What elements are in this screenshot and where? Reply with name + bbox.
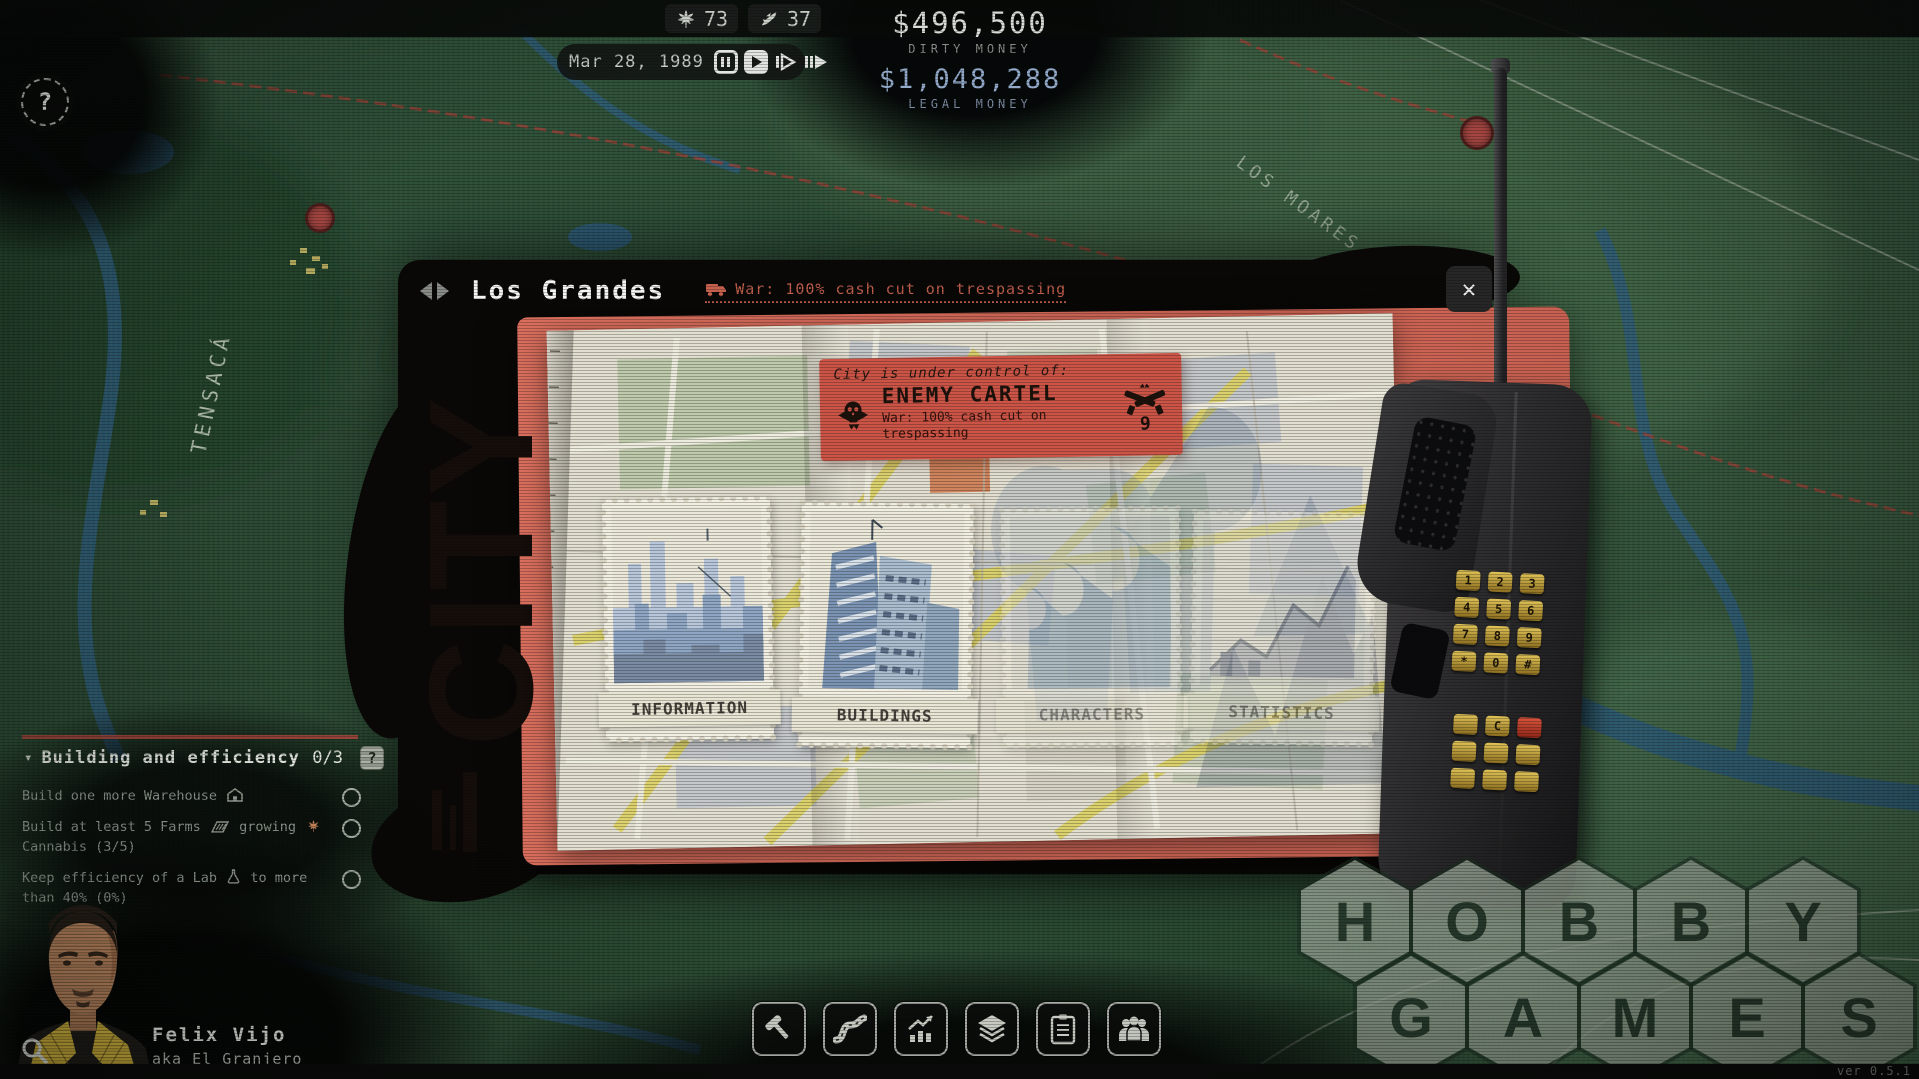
tab-buildings-label: BUILDINGS [792,697,978,735]
brick-phone: 1 2 3 4 5 6 7 8 9 * 0 # C [1378,52,1608,872]
fast-forward-icon [775,53,797,71]
help-button[interactable]: ? [21,78,69,126]
phone-key[interactable]: 5 [1486,598,1511,619]
orders-button[interactable] [1036,1002,1090,1056]
task-checkbox[interactable] [342,870,361,889]
quest-header[interactable]: ▾ Building and efficiency 0/3 ? [22,738,388,776]
bottom-bar: ver 0.5.1 [0,1064,1919,1079]
war-status-text: War: 100% cash cut on trespassing [735,280,1066,298]
people-icon [1010,516,1172,689]
task-text: Build at least 5 Farms [22,819,201,835]
phone-function-key[interactable] [1514,771,1539,792]
collapse-arrow-icon[interactable]: ▾ [24,750,32,766]
task-text: Cannabis (3/5) [22,839,136,855]
enemy-cartel-skull-icon [834,385,873,444]
player-name: Felix Vijo [152,1024,302,1046]
player-name-block: Felix Vijo aka El Granjero [152,1024,302,1068]
quest-tracker: ▾ Building and efficiency 0/3 ? Build on… [22,738,388,908]
legal-money-label: LEGAL MONEY [820,97,1120,111]
search-icon[interactable] [20,1036,50,1066]
lab-flask-icon [227,869,240,884]
route-road-icon [833,1013,867,1045]
tab-buildings[interactable]: BUILDINGS [798,502,973,748]
city-side-word: CITY [407,310,557,830]
phone-function-key[interactable] [1453,714,1478,735]
phone-key[interactable]: 9 [1517,627,1542,648]
control-effect-text: War: 100% cash cut on trespassing [882,407,1113,444]
money-display: $496,500 DIRTY MONEY $1,048,288 LEGAL MO… [820,6,1120,111]
time-controls: Mar 28, 1989 [557,44,805,80]
game-date: Mar 28, 1989 [569,52,704,72]
warehouse-icon [227,788,243,802]
fast-forward-button[interactable] [774,50,798,74]
buildings-stamp-art [808,511,964,690]
cannabis-count: 73 [704,7,728,31]
task-text: growing [239,819,296,835]
city-map-pin[interactable] [305,203,335,233]
phone-clear-key[interactable]: C [1485,715,1510,736]
war-strength: 9 [1122,383,1169,435]
task-checkbox[interactable] [342,819,361,838]
characters-stamp-art [1010,516,1172,689]
characters-button[interactable] [1107,1002,1161,1056]
main-toolbar [752,1002,1161,1056]
chart-icon [1200,520,1367,688]
dirty-money-label: DIRTY MONEY [820,42,1120,56]
statistics-button[interactable] [894,1002,948,1056]
information-stamp-art [611,506,764,684]
quest-reward-icon[interactable]: ? [360,746,384,770]
decorative-bar [463,772,477,852]
city-control-banner: City is under control of: ENEMY CARTEL W… [819,353,1183,461]
quest-divider [22,735,358,739]
cannabis-leaf-small-icon [306,819,321,833]
bird-icon [758,8,780,30]
phone-key[interactable]: 6 [1518,600,1543,621]
bird-count: 37 [787,7,811,31]
decorative-bar [432,790,442,850]
truck-icon [705,281,727,297]
phone-key[interactable]: * [1451,651,1476,672]
city-title: Los Grandes [471,276,665,306]
war-status-link[interactable]: War: 100% cash cut on trespassing [705,280,1066,303]
stats-chart-icon [905,1013,937,1045]
phone-antenna [1494,68,1507,428]
quest-task: Build one more Warehouse [22,786,388,807]
phone-key[interactable]: 2 [1488,571,1513,592]
phone-key[interactable]: 0 [1483,652,1508,673]
layers-icon [975,1013,1009,1045]
tab-statistics[interactable]: STATISTICS [1190,510,1376,745]
play-button[interactable] [744,50,768,74]
phone-key[interactable]: 1 [1456,570,1481,591]
clipboard-icon [1048,1013,1078,1045]
quest-title: Building and efficiency [41,748,303,768]
prev-city-button[interactable] [420,282,432,300]
next-city-button[interactable] [437,282,449,300]
phone-function-key[interactable] [1450,768,1475,789]
phone-function-key[interactable] [1452,741,1477,762]
phone-end-key[interactable] [1517,717,1542,738]
skyline-icon [611,506,764,684]
phone-function-key[interactable] [1515,744,1540,765]
routes-button[interactable] [823,1002,877,1056]
controlling-cartel-name: ENEMY CARTEL [882,380,1112,408]
statistics-stamp-art [1200,520,1367,688]
quest-task: Build at least 5 Farms growing Cannabis … [22,817,388,858]
pause-button[interactable] [714,50,738,74]
decorative-bar [450,805,456,850]
resource-cannabis[interactable]: 73 [665,4,738,33]
phone-key[interactable]: 7 [1453,624,1478,645]
farm-icon [211,820,229,833]
cannabis-leaf-icon [675,8,697,30]
dirty-money-value: $496,500 [820,6,1120,40]
tab-information[interactable]: INFORMATION [602,497,774,742]
phone-key[interactable]: 3 [1520,573,1545,594]
hammer-icon [763,1013,795,1045]
tab-statistics-label: STATISTICS [1183,693,1380,731]
phone-key[interactable]: 8 [1485,625,1510,646]
phone-function-keys: C [1450,714,1542,793]
phone-function-key[interactable] [1482,769,1507,790]
task-checkbox[interactable] [342,788,361,807]
layers-button[interactable] [965,1002,1019,1056]
help-question-mark: ? [38,88,52,116]
phone-function-key[interactable] [1483,742,1508,763]
resource-bird[interactable]: 37 [748,4,821,33]
legal-money-value: $1,048,288 [820,64,1120,95]
build-button[interactable] [752,1002,806,1056]
phone-keypad: 1 2 3 4 5 6 7 8 9 * 0 # [1451,570,1544,675]
phone-key[interactable]: 4 [1454,597,1479,618]
war-strength-value: 9 [1140,414,1151,435]
city-panel-header: Los Grandes War: 100% cash cut on trespa… [420,268,1480,314]
towers-icon [808,511,964,690]
people-icon [1117,1013,1151,1045]
game-screen: TENSACÁ LOS MOARES 73 37 Mar 28, 1989 [0,0,1919,1079]
tab-characters[interactable]: CHARACTERS [1001,507,1181,747]
phone-key[interactable]: # [1515,654,1540,675]
quest-progress: 0/3 [312,748,343,768]
tab-information-label: INFORMATION [598,689,781,727]
task-text: Keep efficiency of a Lab [22,870,217,886]
task-text: Build one more Warehouse [22,788,217,804]
version-label: ver 0.5.1 [1837,1064,1911,1078]
tab-characters-label: CHARACTERS [996,696,1188,733]
